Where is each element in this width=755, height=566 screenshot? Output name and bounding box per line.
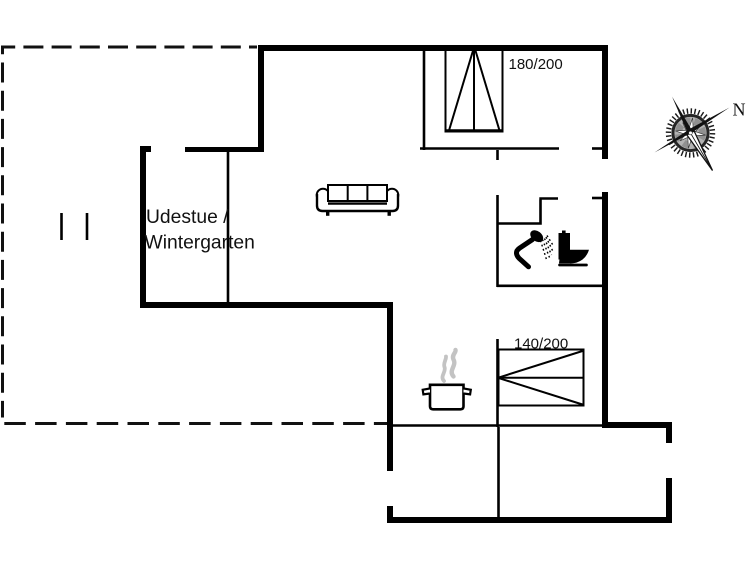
svg-text:N: N — [733, 100, 746, 120]
svg-text:Wintergarten: Wintergarten — [145, 233, 255, 254]
svg-text:Udestue /: Udestue / — [146, 207, 229, 228]
svg-text:180/200: 180/200 — [509, 56, 563, 73]
